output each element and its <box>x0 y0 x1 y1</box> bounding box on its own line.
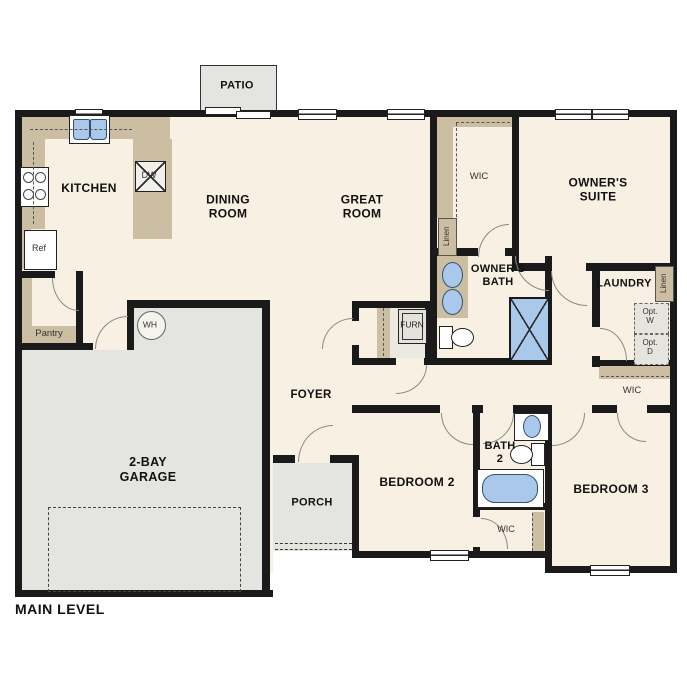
wall <box>330 455 359 463</box>
wic-shelf <box>437 117 453 218</box>
wall <box>352 460 359 558</box>
room-label-laundry: LAUNDRY <box>596 277 651 290</box>
room-label-garage: 2-BAY GARAGE <box>120 455 177 485</box>
wall <box>647 405 677 413</box>
water-heater-label: WH <box>143 320 157 329</box>
exterior-cutout <box>273 551 352 574</box>
wall <box>262 308 270 590</box>
wall <box>352 301 359 321</box>
linen-label: Linen <box>442 220 451 252</box>
wall <box>127 300 134 350</box>
window <box>555 109 592 120</box>
vanity-sink <box>523 415 541 438</box>
room-label-foyer: FOYER <box>290 389 331 403</box>
burner-icon <box>35 189 46 200</box>
furnace-label: FURN <box>400 320 424 329</box>
window <box>590 565 630 576</box>
room-label-owners-bath: OWNER'S BATH <box>471 263 525 289</box>
wall <box>592 405 617 413</box>
room-label-kitchen: KITCHEN <box>61 181 116 195</box>
toilet-tank <box>531 443 545 466</box>
patio-sliding-door <box>236 111 271 119</box>
wall <box>127 300 270 308</box>
vanity-sink <box>442 262 463 288</box>
window <box>298 109 337 120</box>
room-label-wic-bedroom3: WIC <box>623 386 641 396</box>
wall <box>670 110 677 573</box>
closet-rod-line <box>383 308 384 356</box>
wall <box>592 263 600 327</box>
wall <box>512 117 519 248</box>
wall <box>15 271 55 278</box>
room-label-wic-bedroom2: WIC <box>497 525 515 535</box>
dryer-optional-label: Opt. D <box>642 339 657 357</box>
room-label-great: GREAT ROOM <box>341 193 384 222</box>
porch-steps <box>275 549 352 550</box>
cabinet-line <box>33 142 34 224</box>
room-label-dining: DINING ROOM <box>206 193 250 222</box>
wic-shelf <box>532 512 544 551</box>
linen-label: Linen <box>659 267 668 299</box>
dishwasher-label: DW <box>142 171 157 181</box>
window <box>387 109 425 120</box>
bathtub <box>482 474 538 503</box>
closet-rod-line <box>532 513 533 551</box>
wall <box>473 547 480 555</box>
room-label-porch: PORCH <box>291 496 332 509</box>
burner-icon <box>35 172 46 183</box>
closet-rod-line <box>601 376 669 377</box>
washer-optional-label: Opt. W <box>642 308 657 326</box>
toilet-bowl <box>451 328 474 347</box>
cabinet-line <box>30 129 132 130</box>
room-label-bedroom2: BEDROOM 2 <box>379 475 454 489</box>
wall <box>352 345 359 365</box>
room-label-patio: PATIO <box>220 79 253 92</box>
room-label-pantry: Pantry <box>35 329 62 339</box>
room-label-owners-suite: OWNER'S SUITE <box>569 176 628 205</box>
wall <box>273 455 295 463</box>
shower <box>509 297 550 362</box>
wall <box>352 405 440 413</box>
room-label-bedroom3: BEDROOM 3 <box>573 482 648 496</box>
refrigerator-label: Ref <box>32 244 46 254</box>
room-label-wic-owners: WIC <box>470 172 488 182</box>
vanity-sink <box>442 289 463 315</box>
wall <box>352 301 432 308</box>
floor-plan: KITCHEN DINING ROOM GREAT ROOM PATIO OWN… <box>0 0 687 687</box>
closet-rod-line <box>456 122 510 123</box>
porch-steps <box>275 543 352 544</box>
plan-title: MAIN LEVEL <box>15 601 105 618</box>
room-label-bath2: BATH 2 <box>485 440 516 466</box>
garage-door-outline <box>48 507 241 592</box>
window <box>592 109 629 120</box>
wic-shelf <box>599 366 670 379</box>
window <box>430 550 469 561</box>
closet-rod-line <box>456 123 457 217</box>
